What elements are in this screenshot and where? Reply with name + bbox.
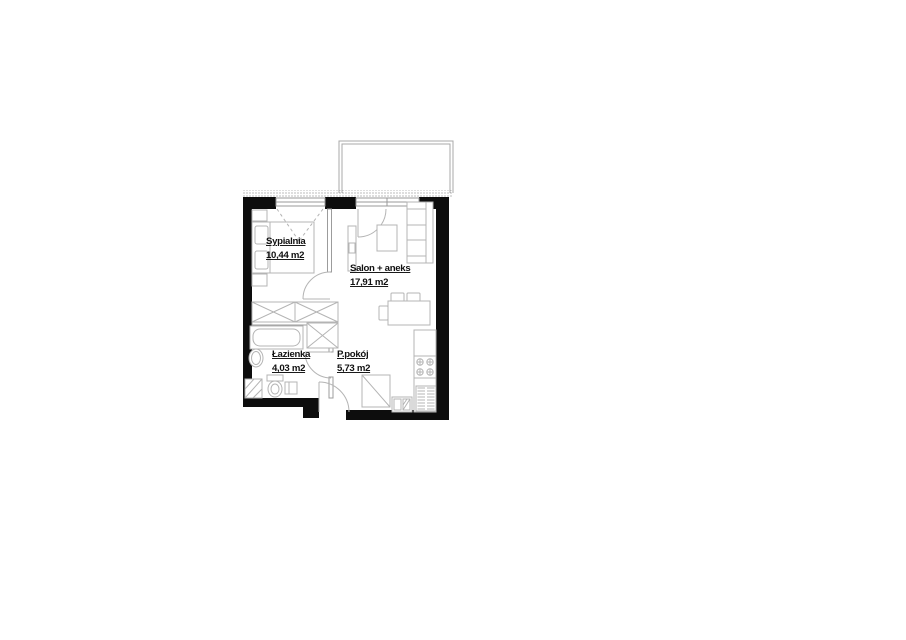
room-label-lazienka: Łazienka <box>272 349 311 360</box>
balcony-inner-rail <box>342 144 450 193</box>
room-area-salon: 17,91 m2 <box>350 277 388 288</box>
tv <box>349 243 355 253</box>
washing-machine <box>245 379 262 398</box>
entrance-door <box>319 382 349 412</box>
wardrobe-hallway <box>362 375 390 407</box>
bedroom-door <box>303 272 330 299</box>
nightstand <box>252 210 267 221</box>
bathroom-fixtures <box>245 326 303 398</box>
coffee-table <box>377 225 397 251</box>
couch <box>407 202 433 263</box>
partition-bathroom-hall-top <box>329 348 333 352</box>
wall-left <box>243 197 252 407</box>
nightstand <box>252 274 267 286</box>
dining-set <box>379 293 430 325</box>
room-area-ppokoj: 5,73 m2 <box>337 363 370 374</box>
wall-bottom-left <box>243 398 311 407</box>
stove <box>414 356 436 378</box>
wardrobe-bedroom-right <box>295 302 338 322</box>
bathtub <box>250 326 303 349</box>
wardrobe-hall-corner <box>307 323 338 348</box>
toilet <box>267 375 283 397</box>
wall-right <box>436 197 449 420</box>
wall-top-mid <box>325 197 356 209</box>
floor-plan-page: Sypialnia 10,44 m2 Salon + aneks 17,91 m… <box>0 0 906 640</box>
bathroom-cabinet <box>285 382 297 394</box>
room-area-lazienka: 4,03 m2 <box>272 363 305 374</box>
floor-plan: Sypialnia 10,44 m2 Salon + aneks 17,91 m… <box>0 0 906 640</box>
insulation-band <box>242 190 453 197</box>
wardrobe-bedroom-left <box>252 302 295 322</box>
dishwasher <box>392 397 412 412</box>
partition-bathroom-hall-bottom <box>329 377 333 398</box>
dining-table <box>388 301 430 325</box>
kitchen <box>392 330 436 412</box>
room-area-sypialnia: 10,44 m2 <box>266 250 304 261</box>
bedroom-window <box>276 198 325 206</box>
kitchen-sink <box>416 386 436 411</box>
balcony <box>339 141 453 193</box>
dining-chair <box>379 306 388 320</box>
partition-bedroom-salon <box>328 209 332 272</box>
balcony-outer-rail <box>339 141 453 193</box>
room-label-ppokoj: P.pokój <box>337 349 368 360</box>
room-label-sypialnia: Sypialnia <box>266 236 306 247</box>
washbasin <box>249 349 263 367</box>
bedroom-furniture <box>252 209 323 286</box>
room-label-salon: Salon + aneks <box>350 263 410 274</box>
wall-bottom-step <box>303 398 319 418</box>
